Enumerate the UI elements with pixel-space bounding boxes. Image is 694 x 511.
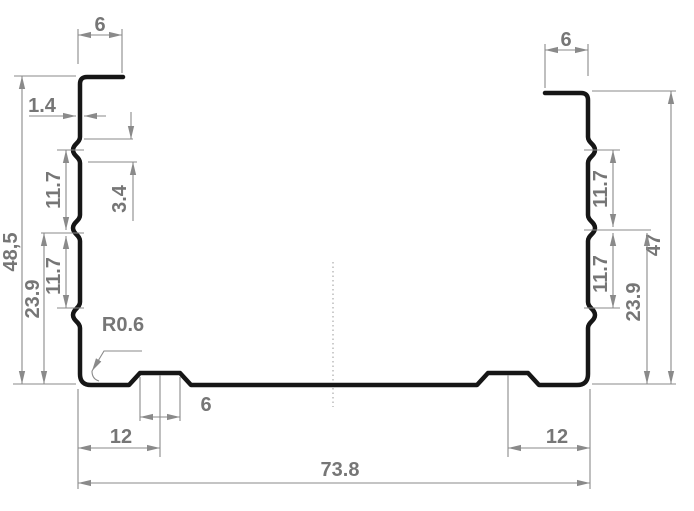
dim-bead-base-right: 23.9 [584, 230, 651, 384]
dim-label-rib-width: 6 [200, 394, 211, 416]
technical-drawing-canvas: 6 48,5 1.4 3.4 11.7 11.7 23.9 [0, 0, 694, 511]
dim-label-height-right: 47 [643, 234, 665, 256]
dim-top-lip-left: 6 [78, 14, 122, 73]
dim-overall-width: 73.8 [78, 389, 590, 489]
leader-line [92, 351, 142, 371]
dim-label-bead-pitch-right-upper: 11.7 [590, 170, 612, 208]
dim-thickness: 1.4 [28, 95, 106, 117]
leader-tail [92, 371, 99, 381]
profile-drawing: 6 48,5 1.4 3.4 11.7 11.7 23.9 [0, 0, 694, 511]
dim-bead-base-left: 23.9 [22, 233, 44, 384]
dim-label-bead-base-right: 23.9 [623, 283, 645, 322]
dim-label-rib-offset-left: 12 [110, 426, 132, 448]
dim-label-corner-radius: R0.6 [102, 314, 144, 336]
dim-label-top-lip-right: 6 [560, 29, 571, 51]
dim-label-bead-pitch-left-upper: 11.7 [43, 171, 65, 209]
dim-label-top-lip-left: 6 [94, 14, 105, 36]
dim-label-height-left: 48,5 [0, 233, 22, 272]
dim-label-bead-pitch-right-lower: 11.7 [590, 255, 612, 293]
dim-height-left: 48,5 [0, 76, 76, 384]
dim-label-bead-depth: 3.4 [109, 184, 131, 213]
dim-bead-pitch-left-lower: 11.7 [41, 233, 84, 308]
dim-top-lip-right: 6 [545, 29, 588, 88]
dim-label-overall-width: 73.8 [321, 459, 360, 481]
dim-rib-offset-left: 12 [78, 375, 160, 457]
profile-outline [73, 77, 595, 385]
dim-rib-offset-right: 12 [508, 375, 590, 457]
dim-label-thickness: 1.4 [28, 95, 57, 117]
dim-label-bead-pitch-left-lower: 11.7 [43, 257, 65, 295]
dim-bead-depth: 3.4 [84, 112, 137, 221]
radius-callout: R0.6 [92, 314, 144, 381]
dim-height-right: 47 [592, 91, 676, 384]
dim-label-bead-base-left: 23.9 [22, 280, 44, 319]
dim-label-rib-offset-right: 12 [546, 426, 568, 448]
